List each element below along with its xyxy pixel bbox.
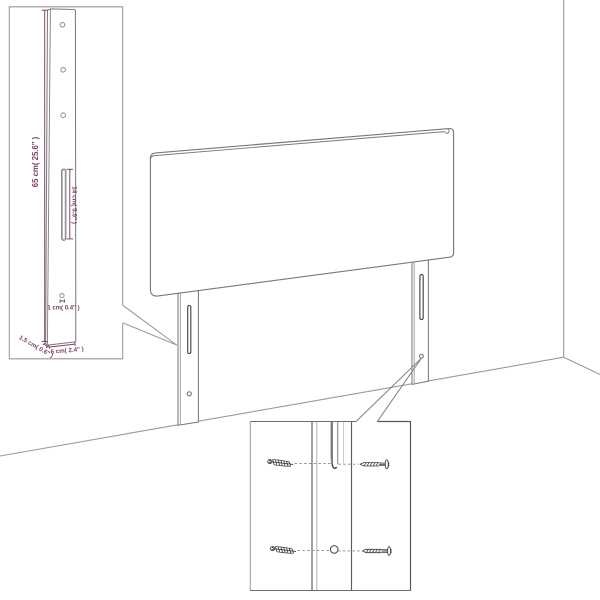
svg-text:14 cm( 5.5″ ): 14 cm( 5.5″ ) (71, 186, 78, 224)
svg-text:1 cm( 0.4″ ): 1 cm( 0.4″ ) (47, 306, 79, 312)
svg-text:65 cm( 25.6″ ): 65 cm( 25.6″ ) (31, 136, 40, 187)
